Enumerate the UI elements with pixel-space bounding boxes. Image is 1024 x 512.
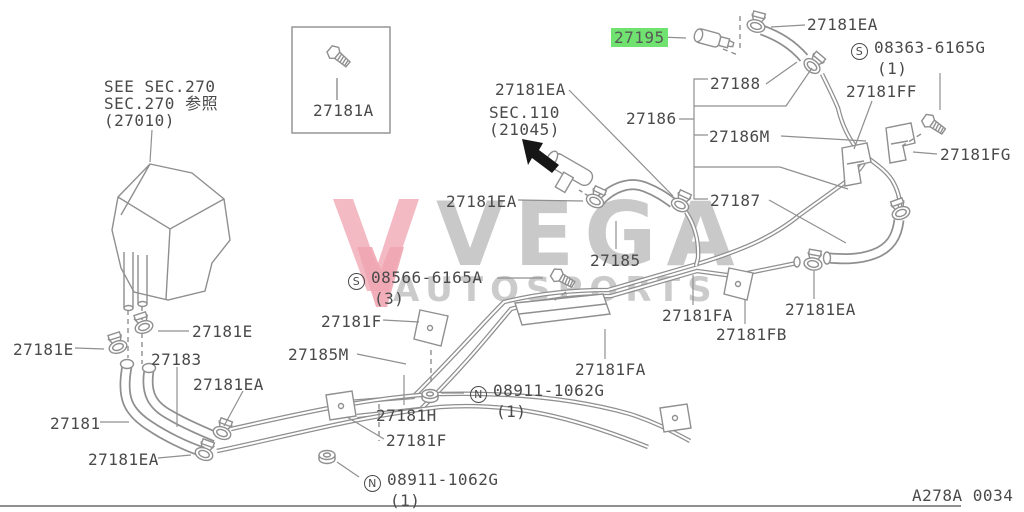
ref-note-sec110: SEC.110(21045) <box>489 104 560 138</box>
part-08911-1062G-bottom-qty: (1) <box>390 492 498 509</box>
ref-note-sec110-line-1: (21045) <box>489 121 560 138</box>
part-27181FA-lower: 27181FA <box>575 361 646 378</box>
part-08911-1062G-bottom: N08911-1062G(1) <box>364 471 498 509</box>
part-27195[interactable]: 27195 <box>611 29 668 46</box>
part-27181-text: 27181 <box>50 414 101 433</box>
part-27181EA-elbow-lower-text: 27181EA <box>88 450 159 469</box>
ref-note-sec270-line-2: (27010) <box>104 112 218 129</box>
part-27181FF-text: 27181FF <box>846 82 917 101</box>
part-27183-text: 27183 <box>151 350 202 369</box>
part-08566-6165A-text: 08566-6165A <box>371 268 482 287</box>
part-27181F-lower: 27181F <box>386 432 447 449</box>
part-27181FA-upper-text: 27181FA <box>662 306 733 325</box>
part-27185-text: 27185 <box>590 251 641 270</box>
part-27183: 27183 <box>151 351 202 368</box>
part-27181F-upper: 27181F <box>321 313 382 330</box>
part-08911-1062G-bottom-text: 08911-1062G <box>387 470 498 489</box>
part-08911-1062G-right-qty: (1) <box>496 403 604 420</box>
diagram-code: A278A 0034 <box>912 487 1013 504</box>
part-27186M-text: 27186M <box>709 127 770 146</box>
part-27181FA-upper: 27181FA <box>662 307 733 324</box>
part-27181E-left: 27181E <box>13 341 74 358</box>
part-08363-6165G-qty: (1) <box>877 60 985 77</box>
screw-prefix-icon: S <box>348 273 365 290</box>
nut-prefix-icon: N <box>364 475 381 492</box>
part-27181A: 27181A <box>313 102 374 119</box>
parts-diagram-page: VEGA AUTOSPORTS <box>0 0 1024 512</box>
diagram-code-text: A278A 0034 <box>912 486 1013 505</box>
part-08363-6165G: S08363-6165G(1) <box>851 39 985 77</box>
part-27181FB: 27181FB <box>716 326 787 343</box>
part-27181EA-elbow-upper-text: 27181EA <box>193 375 264 394</box>
part-27181EA-elbow-lower: 27181EA <box>88 451 159 468</box>
part-27181FB-text: 27181FB <box>716 325 787 344</box>
part-labels: SEE SEC.270SEC.270 参照(27010)27181A271952… <box>0 0 1024 512</box>
part-08566-6165A-qty: (3) <box>374 290 482 307</box>
part-08566-6165A: S08566-6165A(3) <box>348 269 482 307</box>
part-27181F-lower-text: 27181F <box>386 431 447 450</box>
part-27187-text: 27187 <box>710 191 761 210</box>
part-27185M: 27185M <box>288 346 349 363</box>
part-27187: 27187 <box>710 192 761 209</box>
part-27181EA-elbow-upper: 27181EA <box>193 376 264 393</box>
part-27185M-text: 27185M <box>288 345 349 364</box>
part-27188-text: 27188 <box>710 74 761 93</box>
part-27181FF: 27181FF <box>846 83 917 100</box>
part-27181E-right: 27181E <box>192 323 253 340</box>
part-27195-text: 27195 <box>611 28 668 47</box>
part-27181EA-hose-left-text: 27181EA <box>446 192 517 211</box>
part-27186-text: 27186 <box>626 109 677 128</box>
part-27181EA-hose-left: 27181EA <box>446 193 517 210</box>
ref-note-sec270: SEE SEC.270SEC.270 参照(27010) <box>104 78 218 129</box>
part-27181EA-top-text: 27181EA <box>807 15 878 34</box>
screw-prefix-icon: S <box>851 43 868 60</box>
part-27181H: 27181H <box>376 407 437 424</box>
part-27181FA-lower-text: 27181FA <box>575 360 646 379</box>
part-08911-1062G-right: N08911-1062G(1) <box>470 382 604 420</box>
part-27185: 27185 <box>590 252 641 269</box>
ref-note-sec270-line-0: SEE SEC.270 <box>104 78 218 95</box>
part-27181E-right-text: 27181E <box>192 322 253 341</box>
part-08911-1062G-right-text: 08911-1062G <box>493 381 604 400</box>
part-27186: 27186 <box>626 110 677 127</box>
part-27181E-left-text: 27181E <box>13 340 74 359</box>
part-27181F-upper-text: 27181F <box>321 312 382 331</box>
part-27181EA-hose-upper-text: 27181EA <box>495 80 566 99</box>
part-27181EA-hose-upper: 27181EA <box>495 81 566 98</box>
ref-note-sec270-line-1: SEC.270 参照 <box>104 95 218 112</box>
part-08363-6165G-text: 08363-6165G <box>874 38 985 57</box>
part-27181FG: 27181FG <box>940 146 1011 163</box>
part-27181A-text: 27181A <box>313 101 374 120</box>
part-27181EA-right-text: 27181EA <box>785 300 856 319</box>
part-27181EA-top: 27181EA <box>807 16 878 33</box>
part-27186M: 27186M <box>709 128 770 145</box>
part-27188: 27188 <box>710 75 761 92</box>
nut-prefix-icon: N <box>470 386 487 403</box>
ref-note-sec110-line-0: SEC.110 <box>489 104 560 121</box>
part-27181: 27181 <box>50 415 101 432</box>
part-27181H-text: 27181H <box>376 406 437 425</box>
part-27181EA-right: 27181EA <box>785 301 856 318</box>
part-27181FG-text: 27181FG <box>940 145 1011 164</box>
